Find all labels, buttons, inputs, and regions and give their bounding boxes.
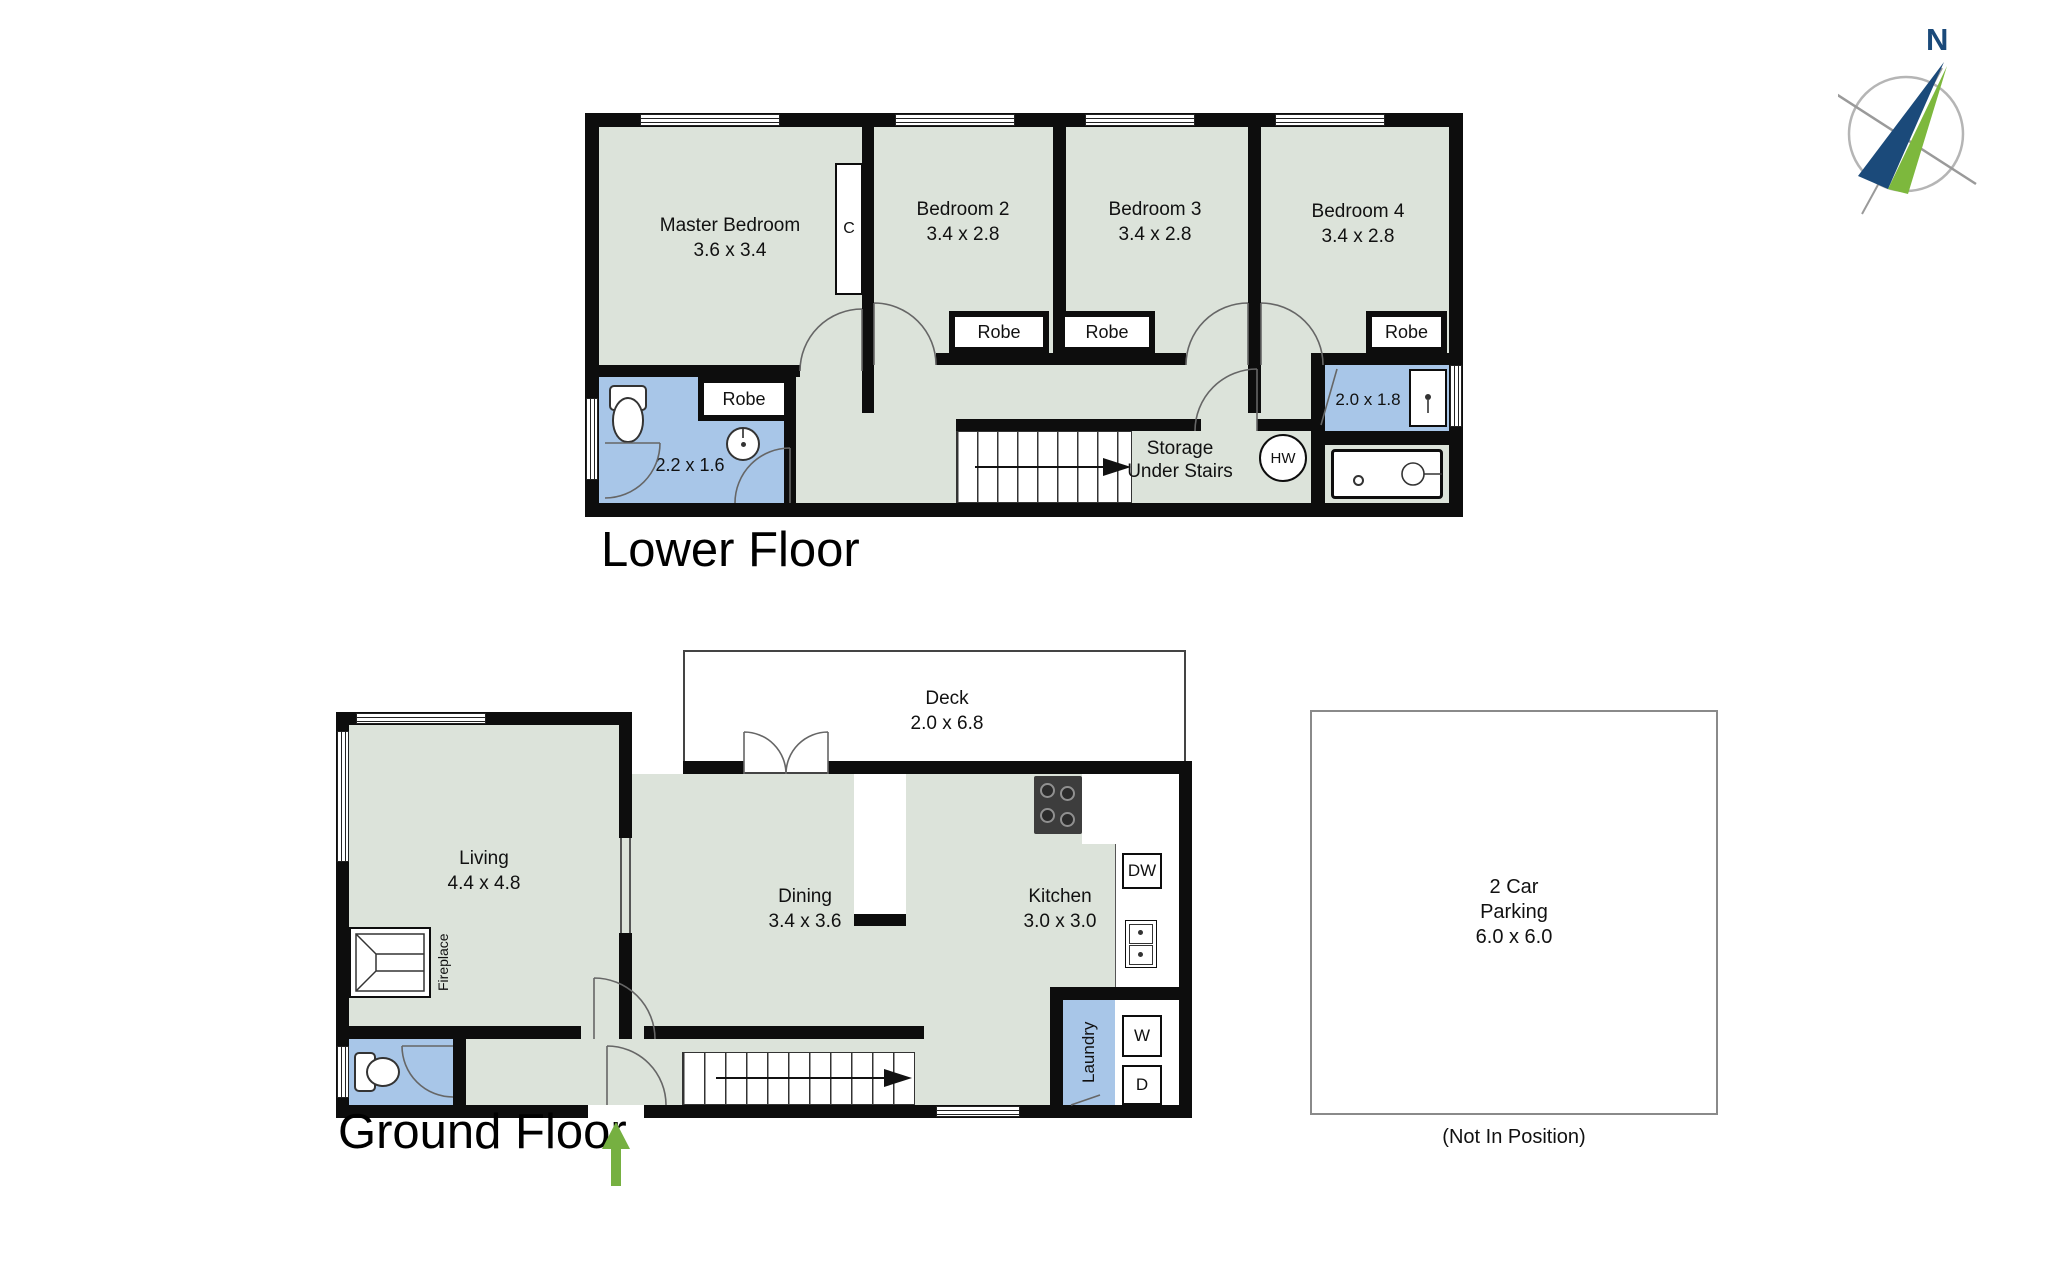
washer: W [1122, 1015, 1162, 1057]
wall-stub [862, 365, 874, 413]
basin-drain [741, 442, 746, 447]
compass-north-label: N [1926, 22, 1948, 58]
room-name: Bedroom 3 [1045, 197, 1265, 222]
ensuite-dims: 2.0 x 1.8 [1323, 387, 1413, 412]
laundry-label: Laundry [1079, 1022, 1099, 1083]
parking-space: 2 Car Parking 6.0 x 6.0 [1310, 710, 1718, 1115]
room-name: Dining [695, 884, 915, 909]
robe-bed2: Robe [949, 311, 1049, 353]
robe-label: Robe [977, 322, 1020, 343]
burner [1060, 786, 1075, 801]
wall-top-main [683, 761, 744, 774]
ground-floor-title: Ground Floor [338, 1104, 627, 1160]
room-kitchen: Kitchen 3.0 x 3.0 [970, 884, 1150, 934]
fireplace [349, 927, 431, 998]
bathroom-dims: 2.2 x 1.6 [625, 453, 755, 478]
parking-line3: 6.0 x 6.0 [1476, 925, 1553, 950]
fireplace-label: Fireplace [432, 927, 454, 998]
wall-living-dining [619, 933, 632, 1039]
parking-line1: 2 Car [1476, 875, 1553, 900]
window [337, 1046, 349, 1098]
wall [1449, 113, 1463, 517]
lower-floor-title: Lower Floor [601, 522, 860, 578]
burner [1060, 812, 1075, 827]
parking-note: (Not In Position) [1310, 1126, 1718, 1149]
compass-crossline [1838, 94, 1976, 184]
wall-bedrooms-bottom [936, 353, 1053, 365]
dryer: D [1122, 1065, 1162, 1105]
wall [585, 503, 1463, 517]
window [1450, 365, 1462, 427]
room-bedroom2: Bedroom 2 3.4 x 2.8 [853, 197, 1073, 247]
window [895, 114, 1015, 126]
window [586, 398, 598, 480]
dishwasher-label: DW [1128, 861, 1156, 881]
robe-label: Robe [722, 389, 765, 410]
robe-master: Robe [698, 377, 790, 421]
window [1275, 114, 1385, 126]
entry-arrow-shaft [611, 1148, 621, 1186]
compass-needle-navy [1858, 62, 1944, 189]
room-dims: 3.0 x 3.0 [970, 909, 1150, 934]
burner [1040, 783, 1055, 798]
wall-ensuite-bottom [1325, 431, 1449, 445]
wall-laundry-top [1050, 987, 1179, 1000]
parking-label: 2 Car Parking 6.0 x 6.0 [1476, 875, 1553, 950]
basin-tap [742, 429, 744, 438]
lower-floor-plan: Robe Robe Robe Robe C HW Master Bedroom … [585, 113, 1463, 517]
room-name: Master Bedroom [620, 213, 840, 238]
storage-line1: Storage [1100, 437, 1260, 460]
wall-bedrooms-bottom [1323, 353, 1449, 365]
room-dining: Dining 3.4 x 3.6 [695, 884, 915, 934]
robe-label: Robe [1085, 322, 1128, 343]
room-dims: 2.0 x 6.8 [857, 711, 1037, 736]
sink-drain [1138, 952, 1143, 957]
tub-drain [1353, 475, 1364, 486]
compass-needle-axis [1862, 68, 1942, 214]
window [337, 731, 349, 862]
wall-storage-ensuite [1311, 353, 1325, 503]
wall-bedrooms-bottom [1066, 353, 1186, 365]
room-name: Kitchen [970, 884, 1150, 909]
storage-line2: Under Stairs [1100, 460, 1260, 483]
burner [1040, 808, 1055, 823]
compass-circle [1849, 77, 1963, 191]
wall-stub [1248, 365, 1261, 413]
wall-stairs-top [956, 419, 1201, 431]
toilet-bowl [612, 397, 644, 443]
wall-wc-right [453, 1039, 466, 1105]
wall-master-bottom [599, 365, 800, 377]
toilet-bowl [366, 1057, 400, 1087]
wall-hall-top [336, 1026, 581, 1039]
room-bedroom3: Bedroom 3 3.4 x 2.8 [1045, 197, 1265, 247]
hot-water-label: HW [1271, 450, 1296, 467]
laundry: Laundry [1063, 1000, 1115, 1105]
wall-right [1179, 761, 1192, 1118]
room-master: Master Bedroom 3.6 x 3.4 [620, 213, 840, 263]
storage-label: Storage Under Stairs [1100, 437, 1260, 483]
kitchen-bench-top [1082, 774, 1179, 844]
room-bedroom4: Bedroom 4 3.4 x 2.8 [1248, 199, 1468, 249]
room-dims: 3.4 x 3.6 [695, 909, 915, 934]
entry-arrow-icon [602, 1122, 630, 1149]
window [936, 1106, 1020, 1117]
room-dims: 3.4 x 2.8 [853, 222, 1073, 247]
ground-floor-plan: Deck 2.0 x 6.8 [336, 648, 1192, 1118]
hall-area [466, 1039, 682, 1105]
opening-edge [620, 838, 622, 933]
floorplan-canvas: N [0, 0, 2048, 1275]
room-name: Bedroom 2 [853, 197, 1073, 222]
deck-label: Deck 2.0 x 6.8 [857, 686, 1037, 736]
parking-line2: Parking [1476, 900, 1553, 925]
wall-laundry-left [1050, 1000, 1063, 1118]
vanity-tap [1425, 394, 1431, 400]
window [1085, 114, 1195, 126]
robe-bed4: Robe [1366, 311, 1447, 353]
room-name: Living [374, 846, 594, 871]
window [356, 713, 486, 724]
wall-living-dining [619, 712, 632, 838]
room-dims: 3.4 x 2.8 [1045, 222, 1265, 247]
washer-label: W [1134, 1026, 1150, 1046]
robe-label: Robe [1385, 322, 1428, 343]
stove [1034, 776, 1082, 834]
room-name: Bedroom 4 [1248, 199, 1468, 224]
room-living: Living 4.4 x 4.8 [374, 846, 594, 896]
wall-top-main [828, 761, 1192, 774]
hot-water-unit: HW [1259, 434, 1307, 482]
compass-needle-green [1888, 66, 1947, 194]
robe-bed3: Robe [1059, 311, 1155, 353]
wall-stairs-top [1257, 419, 1311, 431]
room-dims: 4.4 x 4.8 [374, 871, 594, 896]
room-dims: 3.4 x 2.8 [1248, 224, 1468, 249]
room-name: Deck [857, 686, 1037, 711]
dryer-label: D [1136, 1075, 1148, 1095]
stairs-ground [682, 1052, 915, 1105]
wall-hall-top [644, 1026, 924, 1039]
room-dims: 3.6 x 3.4 [620, 238, 840, 263]
opening-edge [629, 838, 631, 933]
bathtub [1331, 449, 1443, 499]
window [640, 114, 780, 126]
